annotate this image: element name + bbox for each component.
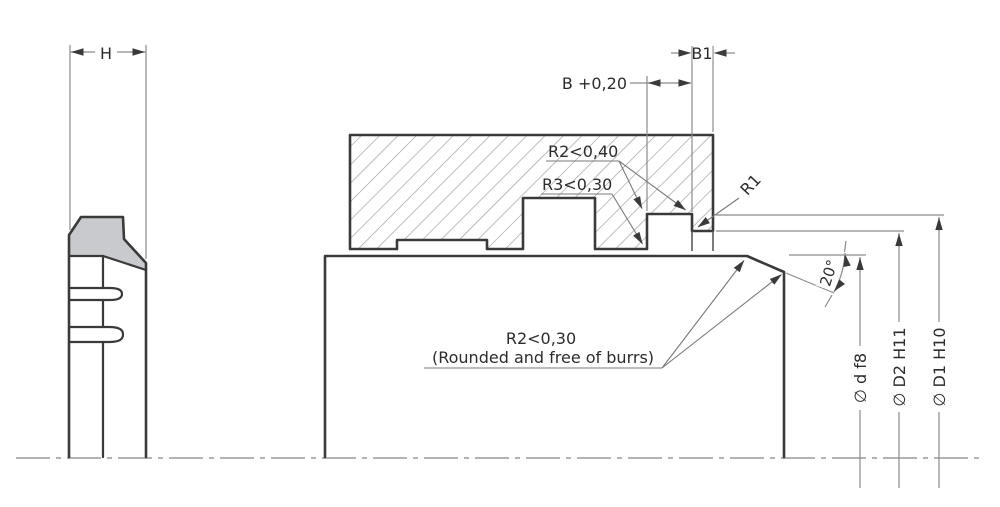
seal-lip-lower xyxy=(69,327,123,342)
dim-B-label: B +0,20 xyxy=(562,74,627,93)
rod-diameter-label: ∅ d f8 xyxy=(851,353,870,403)
land-diameter-label: ∅ D2 H11 xyxy=(890,328,909,407)
seal-lip-upper xyxy=(69,288,122,300)
technical-drawing-svg: H B +0,20 B1 R2<0,40 R3<0,30 xyxy=(0,0,1000,507)
dimension-B1: B1 xyxy=(671,44,735,132)
rod-edge-note-text: (Rounded and free of burrs) xyxy=(432,348,654,367)
dimension-chamfer-angle: 20° xyxy=(786,241,847,307)
housing-section xyxy=(350,135,713,251)
drawing-canvas: H B +0,20 B1 R2<0,40 R3<0,30 xyxy=(0,0,1000,507)
callout-R2-groove-root-label: R2<0,40 xyxy=(548,142,618,161)
rod-edge-note-radius: R2<0,30 xyxy=(506,329,576,348)
dim-H-label: H xyxy=(100,44,112,63)
housing-hatched-body xyxy=(350,135,713,249)
callout-rod-edge-note: R2<0,30 (Rounded and free of burrs) xyxy=(424,261,782,369)
dimension-groove-diameter: ∅ D1 H10 xyxy=(716,215,949,488)
dim-B1-label: B1 xyxy=(691,44,712,63)
callout-R3-opening-label: R3<0,30 xyxy=(542,175,612,194)
seal-head-fill xyxy=(69,217,146,270)
callout-R1-label: R1 xyxy=(736,170,764,199)
seal-profile-figure xyxy=(69,217,146,457)
groove-diameter-label: ∅ D1 H10 xyxy=(930,328,949,407)
dimension-land-diameter: ∅ D2 H11 xyxy=(716,231,909,488)
